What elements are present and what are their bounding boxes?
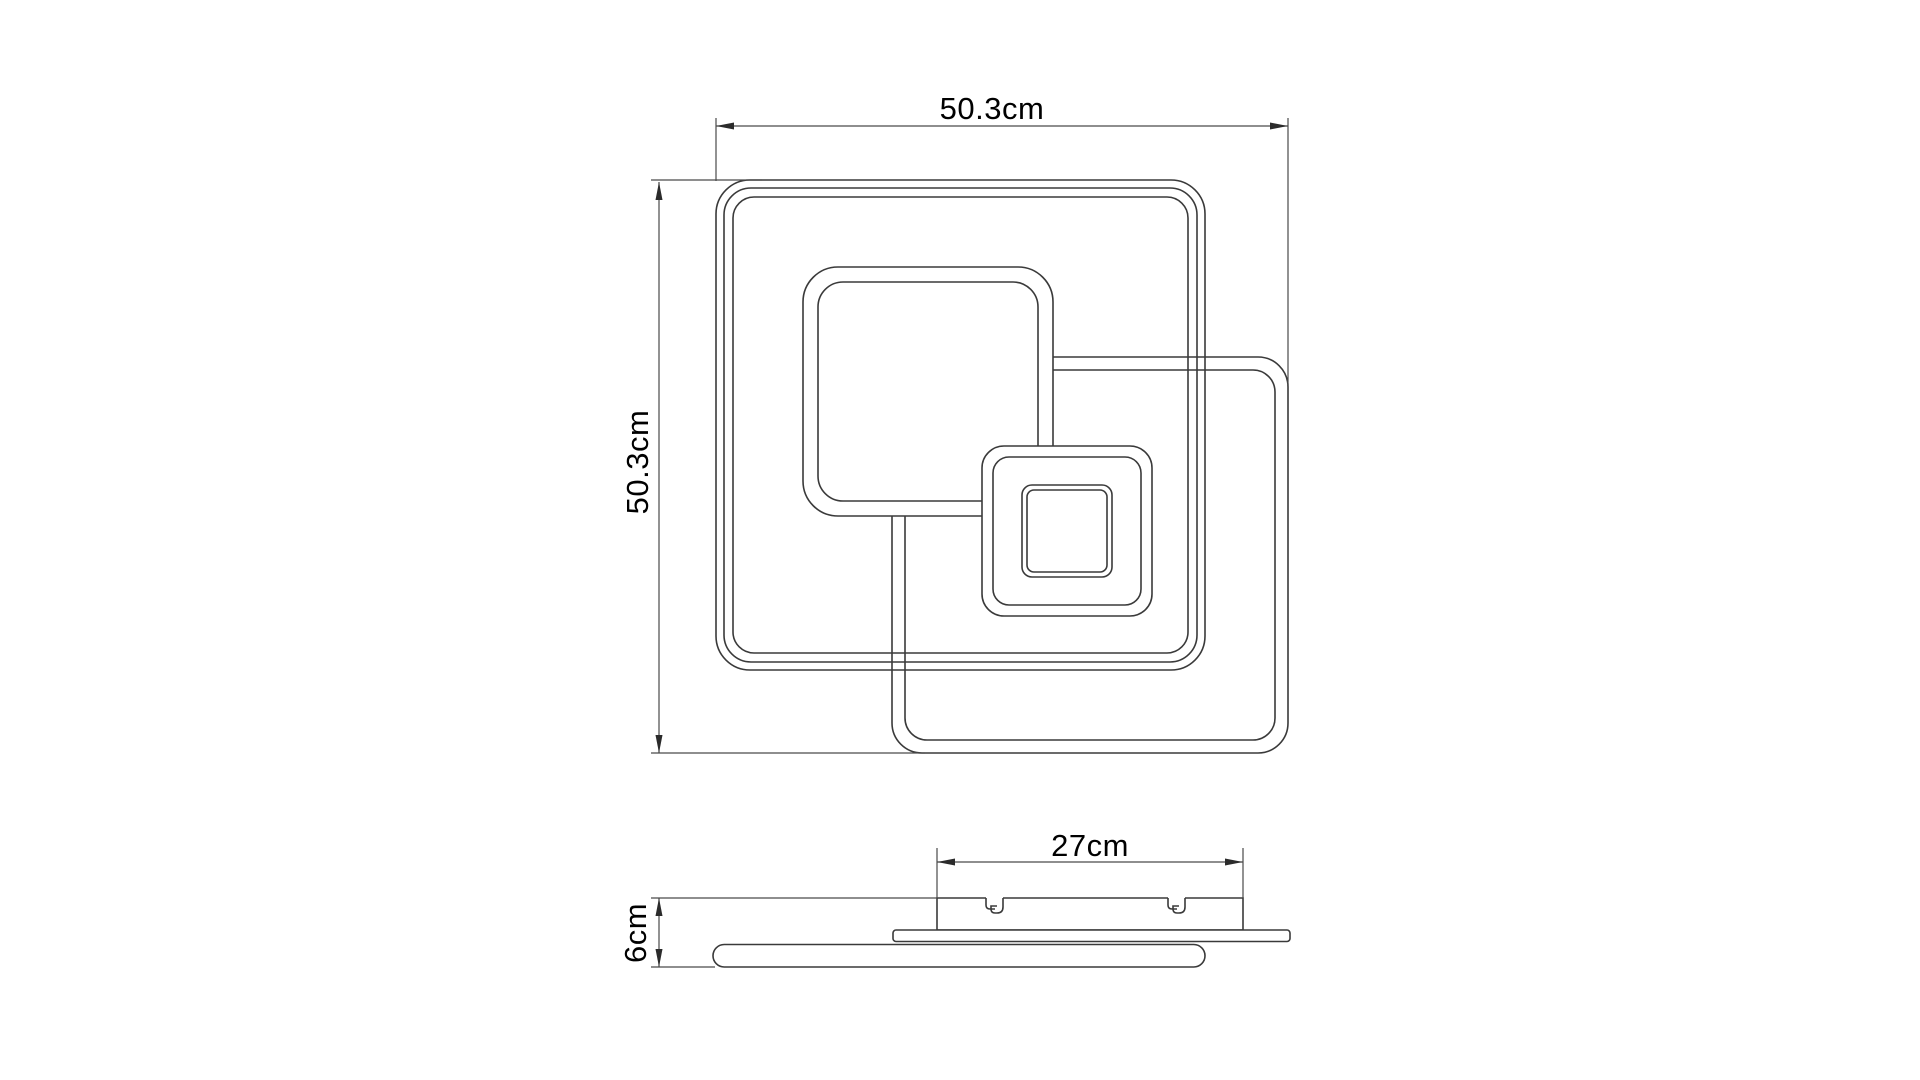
arrow-left-icon bbox=[716, 123, 734, 130]
technical-drawing: 50.3cm 50.3cm bbox=[0, 0, 1920, 1080]
arrow-up-icon bbox=[656, 182, 663, 200]
middle-plate bbox=[893, 930, 1290, 942]
arrow-down-icon bbox=[656, 735, 663, 753]
top-view: 50.3cm 50.3cm bbox=[620, 91, 1288, 753]
arrow-down-icon bbox=[656, 949, 663, 967]
dimension-canopy-width: 27cm bbox=[937, 828, 1243, 898]
arrow-up-icon bbox=[656, 898, 663, 916]
drawing-canvas: 50.3cm 50.3cm bbox=[0, 0, 1920, 1080]
side-view: 27cm 6cm bbox=[618, 828, 1290, 967]
small-square bbox=[982, 446, 1152, 616]
canopy-plate bbox=[937, 898, 1243, 930]
main-bar bbox=[713, 945, 1205, 968]
arrow-right-icon bbox=[1270, 123, 1288, 130]
dimension-label-left-height: 50.3cm bbox=[620, 410, 655, 515]
dimension-label-profile-height: 6cm bbox=[618, 903, 653, 963]
arrow-right-icon bbox=[1225, 859, 1243, 866]
arrow-left-icon bbox=[937, 859, 955, 866]
dimension-label-canopy-width: 27cm bbox=[1051, 828, 1129, 863]
dimension-label-top-width: 50.3cm bbox=[940, 91, 1045, 126]
